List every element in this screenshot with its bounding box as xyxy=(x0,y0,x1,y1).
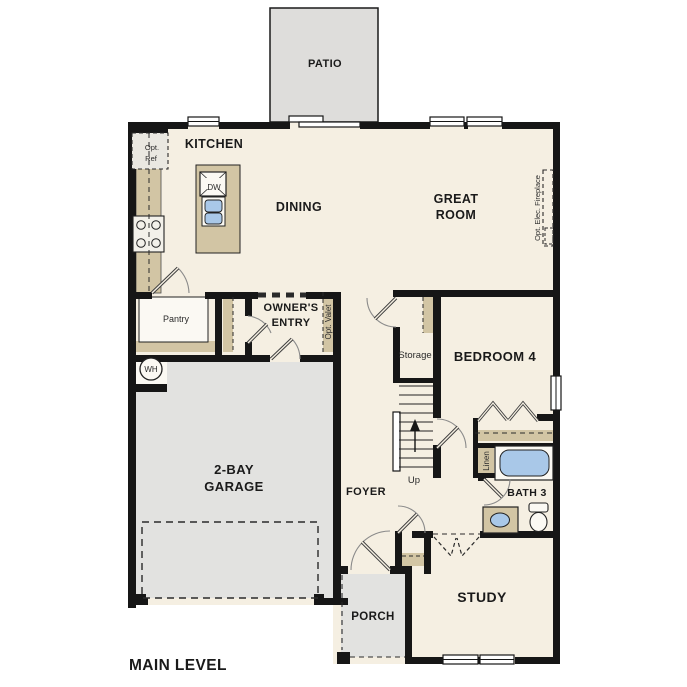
wall xyxy=(314,594,324,605)
wall xyxy=(515,657,560,664)
stairs-up-label: Up xyxy=(408,475,420,486)
bath-3-label: BATH 3 xyxy=(507,487,547,499)
wall xyxy=(337,652,350,664)
svg-text:Ref: Ref xyxy=(145,154,158,163)
opt-fireplace-label: Opt. Elec. Fireplace xyxy=(533,175,542,241)
sink-basin xyxy=(205,200,222,212)
wall xyxy=(537,414,553,421)
owners-entry-label: OWNER'S xyxy=(264,302,319,314)
closet-shelf xyxy=(475,430,553,441)
wall xyxy=(128,292,152,299)
patio-label: PATIO xyxy=(308,58,342,70)
opt-ref-label: Opt. xyxy=(145,143,159,152)
foyer-label: FOYER xyxy=(346,486,386,498)
dishwasher-label: DW xyxy=(207,183,221,192)
garage-label: 2-BAY xyxy=(214,462,254,477)
patio-slider-panel xyxy=(299,122,360,127)
storage-label: Storage xyxy=(398,350,431,361)
wall xyxy=(424,531,431,574)
vanity-sink xyxy=(491,513,510,527)
wall xyxy=(333,566,348,574)
pantry-label: Pantry xyxy=(163,314,190,324)
wall xyxy=(219,122,290,129)
wall xyxy=(245,342,252,355)
wall xyxy=(405,566,412,664)
water-heater-label: WH xyxy=(144,365,158,374)
great-room-label: GREAT xyxy=(434,192,479,206)
wall xyxy=(395,531,402,574)
wall xyxy=(128,122,136,608)
coat-closet-shelf xyxy=(402,553,424,566)
sink-basin xyxy=(205,213,222,224)
patio-slider-panel xyxy=(289,116,323,122)
wall xyxy=(393,378,441,383)
wall xyxy=(405,657,443,664)
wall xyxy=(393,290,553,297)
wall xyxy=(502,122,560,129)
wall xyxy=(245,292,252,316)
pantry-shelf-base xyxy=(136,341,215,352)
wall xyxy=(333,292,341,605)
kitchen-label: KITCHEN xyxy=(185,137,243,151)
study-label: STUDY xyxy=(457,589,507,605)
wall xyxy=(433,290,441,418)
linen-label: Linen xyxy=(482,451,491,471)
floor-plan-page: PATIO KITCHEN DINING GREAT ROOM OWNER'S … xyxy=(0,0,687,687)
wall xyxy=(360,122,430,129)
stair-railing xyxy=(393,412,400,471)
svg-text:ENTRY: ENTRY xyxy=(272,317,311,329)
porch-label: PORCH xyxy=(351,611,395,623)
wall xyxy=(128,384,167,392)
svg-text:GARAGE: GARAGE xyxy=(204,479,263,494)
bedroom-4-label: BEDROOM 4 xyxy=(454,349,537,364)
svg-text:ROOM: ROOM xyxy=(436,208,477,222)
wall xyxy=(215,292,222,355)
floor-plan-drawing: PATIO KITCHEN DINING GREAT ROOM OWNER'S … xyxy=(0,0,687,687)
opt-valet-label: Opt. Valet xyxy=(324,304,333,340)
plan-title: MAIN LEVEL xyxy=(129,657,227,674)
toilet-bowl xyxy=(530,513,547,532)
wall xyxy=(136,594,146,605)
wall xyxy=(433,445,441,478)
bathtub xyxy=(500,450,549,476)
toilet-tank xyxy=(529,503,548,512)
wall xyxy=(128,122,188,129)
mud-bench xyxy=(223,297,233,352)
dining-label: DINING xyxy=(276,200,322,214)
